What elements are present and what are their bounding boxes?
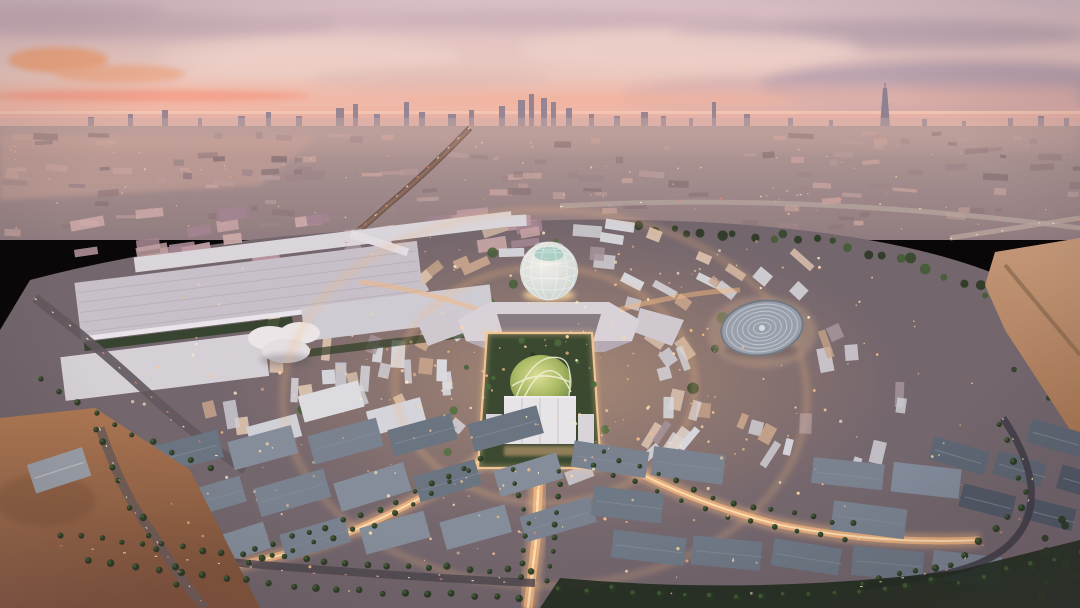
vignette — [0, 0, 1080, 608]
expo-2020-aerial-rendering — [0, 0, 1080, 608]
aerial-scene — [0, 0, 1080, 608]
